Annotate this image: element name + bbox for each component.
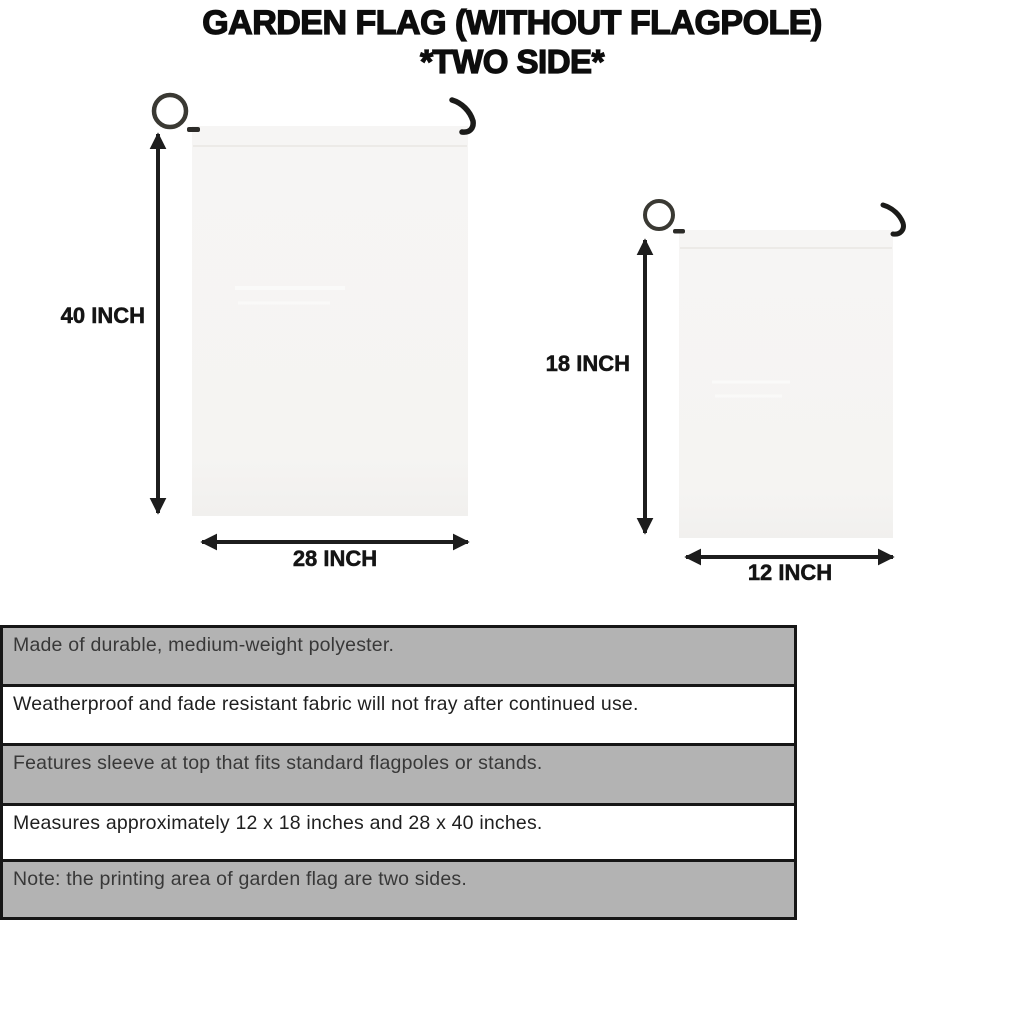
small-flag-height-label: 18 INCH <box>515 351 630 377</box>
small-flag-group <box>645 201 903 619</box>
large-flag-fabric <box>192 126 468 516</box>
garden-flag-infographic: GARDEN FLAG (WITHOUT FLAGPOLE) *TWO SIDE… <box>0 0 1024 1024</box>
small-flag-width-label: 12 INCH <box>690 560 890 586</box>
feature-row: Features sleeve at top that fits standar… <box>3 743 794 803</box>
feature-text: Note: the printing area of garden flag a… <box>13 868 467 890</box>
feature-text: Features sleeve at top that fits standar… <box>13 752 542 774</box>
small-pole-clip <box>673 229 685 234</box>
feature-text: Measures approximately 12 x 18 inches an… <box>13 812 543 834</box>
large-flag-width-label: 28 INCH <box>235 546 435 572</box>
large-pole-clip <box>187 127 200 132</box>
small-flag-fabric <box>679 230 893 538</box>
feature-row: Note: the printing area of garden flag a… <box>3 859 794 917</box>
large-pole-loop-icon <box>154 95 186 127</box>
feature-text: Made of durable, medium-weight polyester… <box>13 634 394 656</box>
small-pole-hook-icon <box>883 205 903 234</box>
feature-row: Weatherproof and fade resistant fabric w… <box>3 684 794 743</box>
small-pole-loop-icon <box>645 201 673 229</box>
feature-table: Made of durable, medium-weight polyester… <box>0 625 797 920</box>
large-flag-group <box>154 95 473 619</box>
feature-text: Weatherproof and fade resistant fabric w… <box>13 693 639 715</box>
large-flag-height-label: 40 INCH <box>30 303 145 329</box>
feature-row: Made of durable, medium-weight polyester… <box>3 628 794 684</box>
feature-row: Measures approximately 12 x 18 inches an… <box>3 803 794 859</box>
